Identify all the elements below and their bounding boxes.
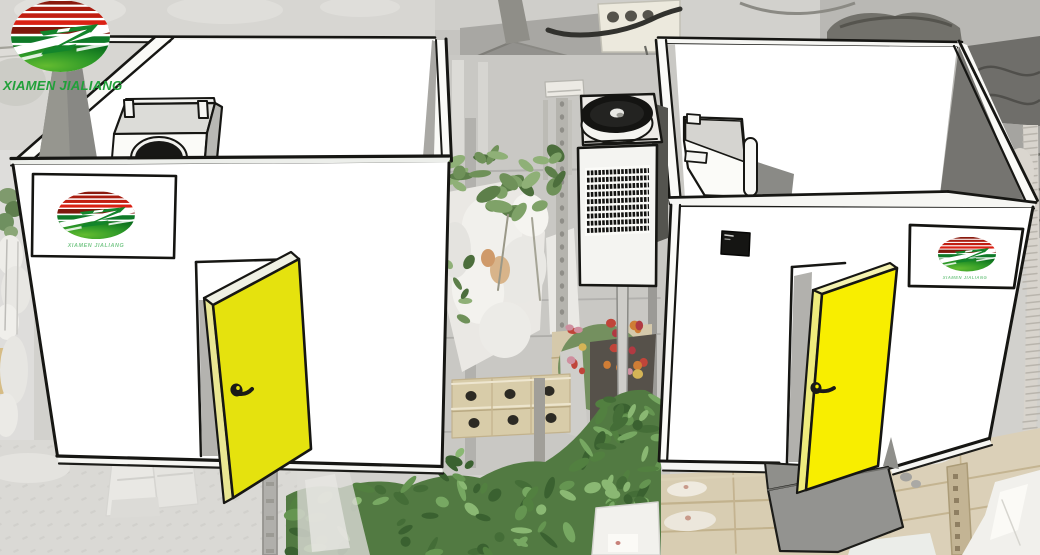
svg-text:XIAMEN JIALIANG: XIAMEN JIALIANG	[942, 275, 988, 280]
svg-text:XIAMEN JIALIANG: XIAMEN JIALIANG	[67, 243, 125, 249]
svg-text:XIAMEN JIALIANG: XIAMEN JIALIANG	[2, 78, 123, 93]
